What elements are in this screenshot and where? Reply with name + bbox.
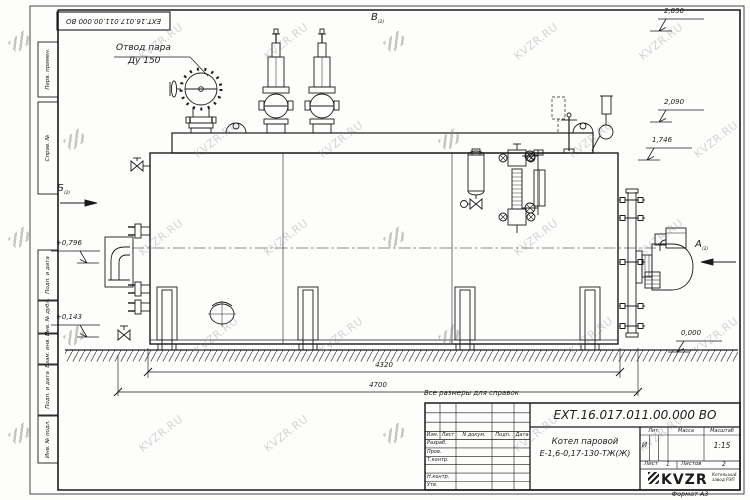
hdr-podp: Подп. — [492, 433, 514, 438]
margin-label-inv-podl: Инв. № подл. — [45, 420, 51, 458]
rear-flange — [619, 189, 645, 337]
steam-outlet-callout-line1: Отвод пара — [116, 44, 171, 53]
level-indicator — [522, 150, 545, 215]
company-name: Котельный завод РЭП — [712, 472, 736, 482]
margin-label-podp-data-2: Подп. и дата — [45, 371, 51, 408]
sheet-label: Лист — [644, 462, 658, 468]
reference-note: Все размеры для справок — [424, 390, 519, 397]
burner — [636, 228, 693, 290]
row-prov: Пров. — [427, 450, 442, 455]
steam-valve — [170, 69, 221, 133]
ground-line — [65, 350, 738, 362]
view-label-v: В(2) — [371, 13, 384, 26]
row-utv: Утв. — [427, 483, 438, 488]
pressure-gauge — [592, 96, 613, 151]
scale-value: 1:15 — [704, 442, 740, 450]
view-label-a: А(2) — [695, 240, 708, 253]
row-razrab: Разраб. — [427, 441, 447, 446]
lifting-lugs — [226, 123, 593, 133]
rear-nozzles — [118, 158, 150, 340]
ghost-fitting — [552, 97, 565, 133]
margin-label-perv-primen: Перв. примен. — [45, 48, 51, 89]
hdr-list: Лист — [440, 433, 456, 438]
hdr-ndoc: N докум. — [456, 433, 492, 438]
drawing-sheet: ЕХТ.16.017.011.00.000 ВО Перв. примен. С… — [0, 0, 750, 500]
elevation-0796: +0,796 — [56, 240, 82, 247]
title-doc-number: ЕХТ.16.017.011.00.000 ВО — [532, 404, 738, 427]
top-stamp-doc-number: ЕХТ.16.017.011.00.000 ВО — [57, 12, 170, 30]
format-label: Формат А3 — [640, 491, 740, 498]
hdr-lit: Лит. — [640, 429, 668, 434]
product-name: Котел паровой — [532, 438, 638, 447]
steam-outlet-callout-line2: Ду 150 — [128, 57, 160, 66]
boiler-supports — [157, 287, 600, 350]
hdr-scale: Масштаб — [704, 429, 740, 434]
elevation-0143: +0,143 — [56, 314, 82, 321]
sheet-value: 1 — [666, 462, 670, 468]
hdr-data: Дата — [514, 433, 530, 438]
sheets-value: 2 — [722, 462, 726, 468]
dimension-4700: 4700 — [358, 382, 398, 389]
view-arrow-a — [701, 259, 736, 265]
margin-label-sprav-no: Справ. № — [45, 135, 51, 162]
water-gauge — [499, 144, 535, 233]
hdr-izm: Изм. — [425, 433, 440, 438]
margin-label-vzam-inv: Взам. инв. № — [45, 330, 51, 367]
kvzr-logo-bars-icon — [648, 472, 659, 484]
elevation-2090: 2,090 — [664, 99, 684, 106]
view-arrow-b — [60, 200, 97, 206]
view-label-b: Б(2) — [57, 184, 70, 197]
safety-valve-1 — [259, 29, 293, 133]
elevation-2850: 2,850 — [664, 8, 684, 15]
product-model: Е-1,6-0,17-130-ТЖ(Ж) — [532, 450, 638, 458]
sampler-vessel — [461, 149, 485, 209]
rear-elbow-box — [105, 237, 133, 287]
hdr-mass: Масса — [668, 429, 704, 434]
elevation-0000: 0,000 — [681, 330, 701, 337]
kvzr-logo: KVZR — [648, 472, 708, 488]
row-nkontr: Н.контр. — [427, 475, 449, 480]
elevation-1746: 1,746 — [652, 137, 672, 144]
row-tkontr: Т.контр. — [427, 458, 449, 463]
safety-valve-2 — [305, 29, 339, 133]
margin-label-podp-data-1: Подп. и дата — [45, 256, 51, 293]
lit-value: И — [640, 442, 649, 449]
dimension-4320: 4320 — [364, 362, 404, 369]
elevation-marks — [51, 19, 722, 352]
handhole-oval — [208, 301, 236, 327]
sheets-label: Листов — [681, 462, 702, 468]
